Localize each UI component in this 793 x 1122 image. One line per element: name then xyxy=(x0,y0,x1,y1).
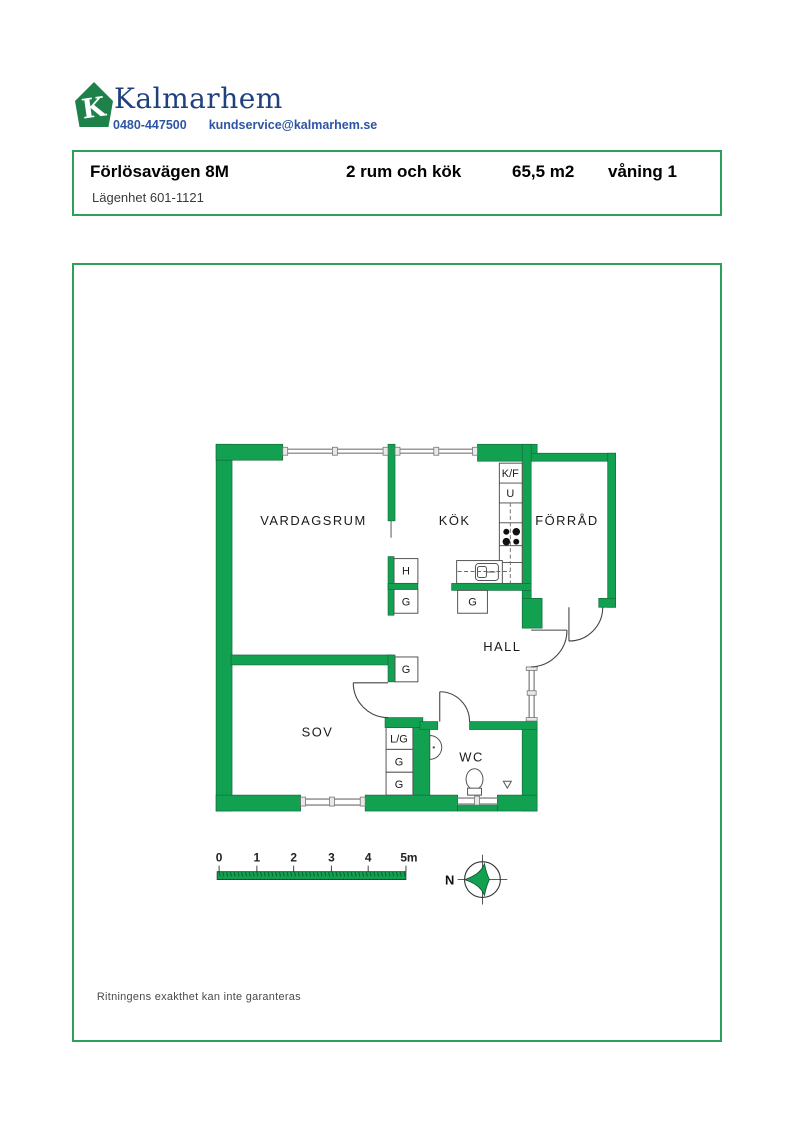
room-label-storage: FÖRRÅD xyxy=(535,513,598,528)
street-address: Förlösavägen 8M xyxy=(90,162,229,182)
svg-text:4: 4 xyxy=(365,851,372,865)
svg-text:G: G xyxy=(402,596,411,608)
house-logo-icon: K xyxy=(73,80,115,130)
brand-name: Kalmarhem xyxy=(114,82,283,115)
door-bedroom xyxy=(353,683,388,718)
phone-number: 0480-447500 xyxy=(113,118,187,132)
apartment-id: Lägenhet 601-1121 xyxy=(92,190,204,205)
svg-text:2: 2 xyxy=(290,851,297,865)
closet-g-mid: G xyxy=(386,749,413,772)
svg-text:1: 1 xyxy=(254,851,261,865)
fridge-freezer-label: K/F xyxy=(502,468,519,480)
room-label-bedroom: SOV xyxy=(302,724,334,739)
kitchen-faucet-icon xyxy=(478,567,487,578)
email-address: kundservice@kalmarhem.se xyxy=(209,118,378,132)
apartment-header-box: Förlösavägen 8M 2 rum och kök 65,5 m2 vå… xyxy=(72,150,722,216)
floorplan-frame: K/F U H G G G xyxy=(72,263,722,1042)
window-entrance-side xyxy=(526,667,537,722)
room-label-wc: WC xyxy=(459,749,483,764)
north-label: N xyxy=(445,873,454,888)
svg-text:5m: 5m xyxy=(400,851,417,865)
apartment-area: 65,5 m2 xyxy=(512,162,574,182)
kitchen-sink-counter xyxy=(457,561,511,584)
room-label-living: VARDAGSRUM xyxy=(260,513,366,528)
window-top-kitchen xyxy=(395,447,477,455)
scale-bar: 0 1 2 3 4 5m xyxy=(216,851,418,880)
interior-walls xyxy=(231,444,537,795)
window-bottom-bedroom xyxy=(301,797,366,806)
toilet-icon xyxy=(466,769,483,795)
svg-text:3: 3 xyxy=(328,851,335,865)
window-bottom-wc xyxy=(458,796,498,805)
closet-h: H xyxy=(394,559,418,584)
floor-number: våning 1 xyxy=(608,162,677,182)
closet-g-low: G xyxy=(386,772,413,795)
room-label-hall: HALL xyxy=(483,639,521,654)
window-top-living xyxy=(283,447,388,455)
compass-rose: N xyxy=(445,855,507,905)
closet-lg: L/G xyxy=(386,728,413,750)
contact-line: 0480-447500kundservice@kalmarhem.se xyxy=(113,118,377,132)
svg-text:0: 0 xyxy=(216,851,223,865)
floorplan-drawing: K/F U H G G G xyxy=(74,265,720,1040)
door-entrance xyxy=(531,630,567,667)
oven-label: U xyxy=(506,488,514,500)
door-wc xyxy=(440,692,470,722)
floor-drain-icon xyxy=(503,781,511,788)
closet-g-bedroom: G xyxy=(395,657,418,682)
svg-text:G: G xyxy=(395,779,404,791)
svg-text:G: G xyxy=(468,596,477,608)
svg-text:G: G xyxy=(402,664,411,676)
room-label-kitchen: KÖK xyxy=(439,513,471,528)
closet-g-kitchen: G xyxy=(458,590,488,613)
wc-sink-icon xyxy=(430,735,442,759)
svg-text:L/G: L/G xyxy=(390,733,408,745)
svg-text:H: H xyxy=(402,565,410,577)
door-storage xyxy=(569,607,603,641)
svg-text:G: G xyxy=(395,756,404,768)
closet-g-hall: G xyxy=(394,589,418,613)
room-count: 2 rum och kök xyxy=(346,162,461,182)
disclaimer-text: Ritningens exakthet kan inte garanteras xyxy=(97,991,301,1003)
